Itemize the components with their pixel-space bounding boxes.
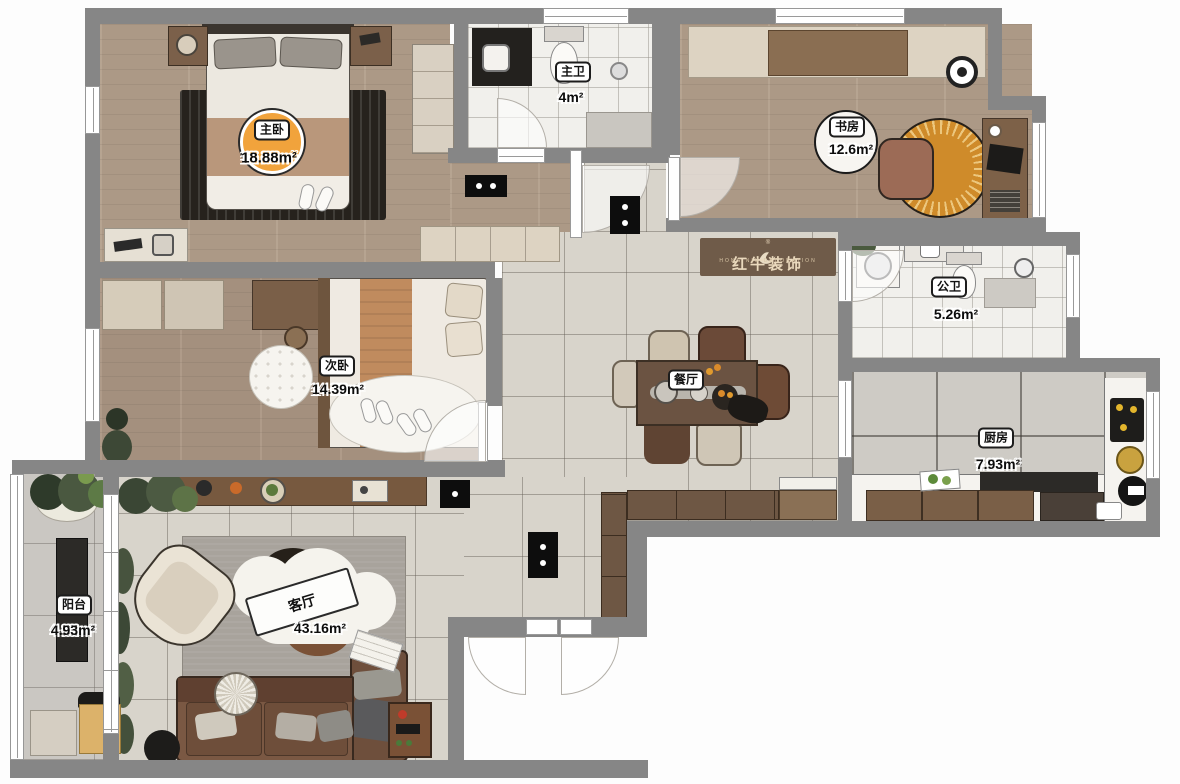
room-label-master-bathroom: 主卫 [555, 62, 591, 83]
dining-cabinet-vertical [601, 492, 627, 618]
kitchen-flame [1130, 406, 1137, 413]
wall [845, 232, 1080, 246]
room-area-kitchen: 7.93m² [976, 456, 1020, 472]
bed2-pillow-a [444, 282, 483, 320]
study-cup [988, 124, 1002, 138]
wall [988, 24, 1002, 100]
corridor-closet [420, 226, 560, 262]
window-bedroom2-left [85, 328, 100, 422]
registered-mark: ® [766, 240, 770, 246]
bed2-plant [102, 430, 132, 464]
dining-cabinet-bottom [627, 490, 779, 520]
master-pillow-right [279, 36, 342, 69]
room-area-guest-bathroom: 5.26m² [934, 306, 978, 322]
wall [627, 521, 1160, 537]
mbath-shower-tray [586, 112, 652, 148]
kitchen-veggies [928, 474, 938, 484]
room-area-balcony: 4.93m² [51, 622, 95, 638]
bed2-round-rug [250, 346, 312, 408]
mbath-drain [610, 62, 628, 80]
gbath-toilet-tank [946, 252, 982, 265]
study-fan-hub [957, 67, 967, 77]
study-closet-slider [768, 30, 908, 76]
dining-bench [779, 477, 837, 490]
balcony-slider[interactable] [103, 494, 119, 734]
entry-door-arc [468, 637, 526, 695]
dining-chair [696, 424, 742, 466]
wall [454, 24, 468, 150]
side-cabinet-green [406, 740, 412, 746]
room-label-master-bedroom: 主卧 [254, 120, 290, 141]
entry-door-arc [561, 637, 619, 695]
side-cabinet-green [396, 740, 402, 746]
mbath-sink [482, 44, 510, 72]
wall [448, 148, 670, 163]
entry-door-leaf[interactable] [526, 619, 558, 635]
side-cabinet-red [398, 710, 407, 719]
study-laptop [986, 144, 1023, 174]
light-marker [528, 532, 558, 578]
room-label-kitchen: 厨房 [978, 428, 1014, 449]
floor-plan: ® 红牛装饰 HONG NIU DECORATION 主卧 18.88m² 主卫… [0, 0, 1180, 784]
bed2-pillow-b [445, 320, 484, 357]
kitchen-cooktop [1110, 398, 1144, 442]
wall [85, 20, 100, 264]
master-bench-dish [152, 234, 174, 256]
kitchen-cabinet-right [1040, 492, 1104, 521]
wall [838, 358, 1160, 372]
wall [10, 760, 648, 778]
wall [666, 24, 680, 155]
room-area-second-bedroom: 14.39m² [312, 381, 364, 397]
room-label-second-bedroom: 次卧 [319, 356, 355, 377]
room-label-balcony: 阳台 [56, 595, 92, 616]
kitchen-small-sink [1096, 502, 1122, 520]
kitchen-pan [1116, 446, 1144, 474]
master-wardrobe [412, 44, 454, 154]
kitchen-veg-box [919, 469, 960, 492]
console-plant [266, 484, 278, 496]
room-area-master-bedroom: 18.88m² [241, 150, 297, 167]
room-area-master-bathroom: 4m² [559, 89, 584, 105]
dining-chair [612, 360, 638, 408]
study-door-leaf[interactable] [668, 157, 680, 221]
wall [95, 460, 505, 477]
room-label-dining: 餐厅 [668, 370, 704, 391]
wall [666, 218, 1032, 232]
console-frame-dot [360, 486, 368, 494]
dining-chair [644, 422, 690, 464]
dining-fruit [706, 368, 713, 375]
wall-stub [103, 734, 119, 760]
console-frame [352, 480, 388, 502]
study-books [990, 190, 1020, 212]
room-label-guest-bathroom: 公卫 [931, 277, 967, 298]
knit-pouf [214, 672, 258, 716]
window-study-top [775, 8, 905, 24]
sofa-back [178, 678, 352, 702]
balcony-box-a [30, 710, 77, 756]
bed2-closet-b [164, 280, 224, 330]
wall-stub [103, 474, 119, 494]
kitchen-cabinets [866, 490, 1034, 521]
wall [85, 262, 495, 278]
mbath-toilet-tank [544, 26, 584, 42]
sofa-pillow [275, 712, 317, 742]
window-balcony-outer [10, 474, 24, 760]
gbath-mat [984, 278, 1036, 308]
kitchen-veggies [942, 476, 951, 485]
opening-gbath-door[interactable] [838, 250, 852, 302]
kitchen-kettle-handle [1128, 486, 1144, 495]
wall [988, 96, 1046, 110]
dining-fruit [718, 390, 725, 397]
speaker-box [440, 480, 470, 508]
entry-door-leaf[interactable] [560, 619, 592, 635]
kitchen-flame [1120, 424, 1127, 431]
window-kitchen-right [1146, 391, 1160, 479]
study-chair [878, 138, 934, 200]
master-nightstand-right [350, 26, 392, 66]
kitchen-dark-counter [980, 472, 1098, 492]
opening-mbath-door[interactable] [497, 148, 545, 163]
bed2-plant [106, 408, 128, 430]
living-plant [172, 486, 198, 512]
brand-subtitle: HONG NIU DECORATION [719, 259, 816, 264]
gbath-shower-head [1014, 258, 1034, 278]
room-label-study: 书房 [829, 117, 865, 138]
console-orange [230, 482, 242, 494]
window-mbath-top [543, 8, 629, 24]
hall-door-leaf[interactable] [570, 150, 582, 238]
sofa-pillow [316, 709, 354, 742]
brand-logo: ® 红牛装饰 HONG NIU DECORATION [700, 238, 836, 276]
room-area-study: 12.6m² [829, 141, 873, 157]
wall [627, 521, 647, 621]
dining-cabinet-bottom2 [779, 490, 837, 520]
kitchen-flame [1116, 404, 1123, 411]
chaise-pillow-light [352, 668, 403, 701]
light-marker [610, 196, 640, 234]
room-area-living: 43.16m² [294, 620, 346, 636]
opening-kitchen-door[interactable] [838, 380, 852, 458]
window-study-right [1032, 122, 1046, 218]
master-lamp-left [176, 34, 198, 56]
window-gbath-right [1066, 254, 1080, 318]
light-marker [465, 175, 507, 197]
window-master-left [85, 86, 100, 134]
wall [12, 460, 120, 474]
side-cabinet-black [396, 724, 420, 734]
master-pillow-left [213, 36, 276, 69]
wall [486, 278, 502, 406]
wall [448, 617, 464, 762]
bed2-closet-a [102, 280, 162, 330]
console-pot [196, 480, 212, 496]
dining-fruit [714, 364, 721, 371]
